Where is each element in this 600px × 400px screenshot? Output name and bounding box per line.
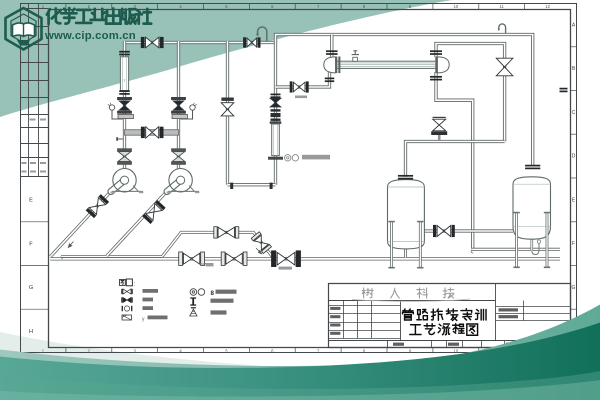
svg-text:10: 10 <box>453 348 458 353</box>
svg-text:11: 11 <box>500 4 505 9</box>
svg-text:D: D <box>572 154 576 160</box>
svg-text:E: E <box>29 198 33 204</box>
svg-text:12: 12 <box>545 4 550 9</box>
svg-text:F: F <box>29 241 33 247</box>
svg-text:C: C <box>572 110 576 116</box>
svg-text:G: G <box>572 285 576 291</box>
svg-text:H: H <box>29 329 33 335</box>
svg-text:G: G <box>29 285 33 291</box>
svg-text:www.cip.com.cn: www.cip.com.cn <box>44 30 136 42</box>
svg-text:8: 8 <box>211 290 215 297</box>
svg-text:10: 10 <box>453 4 458 9</box>
svg-text:F: F <box>572 241 575 247</box>
